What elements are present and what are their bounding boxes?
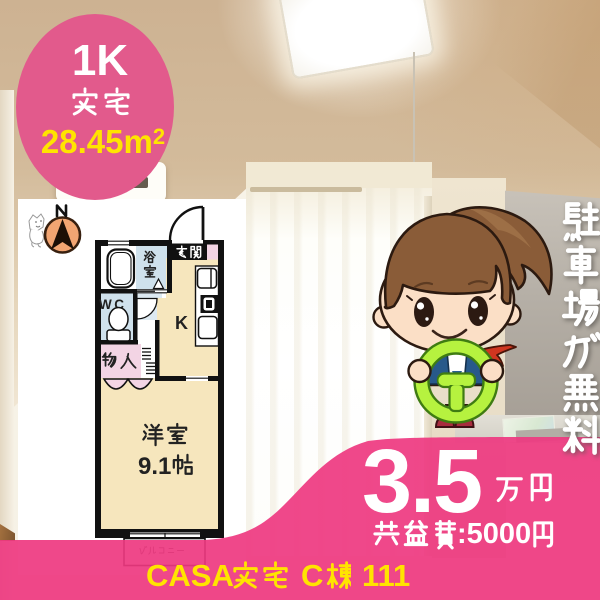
- svg-text:K: K: [175, 313, 188, 333]
